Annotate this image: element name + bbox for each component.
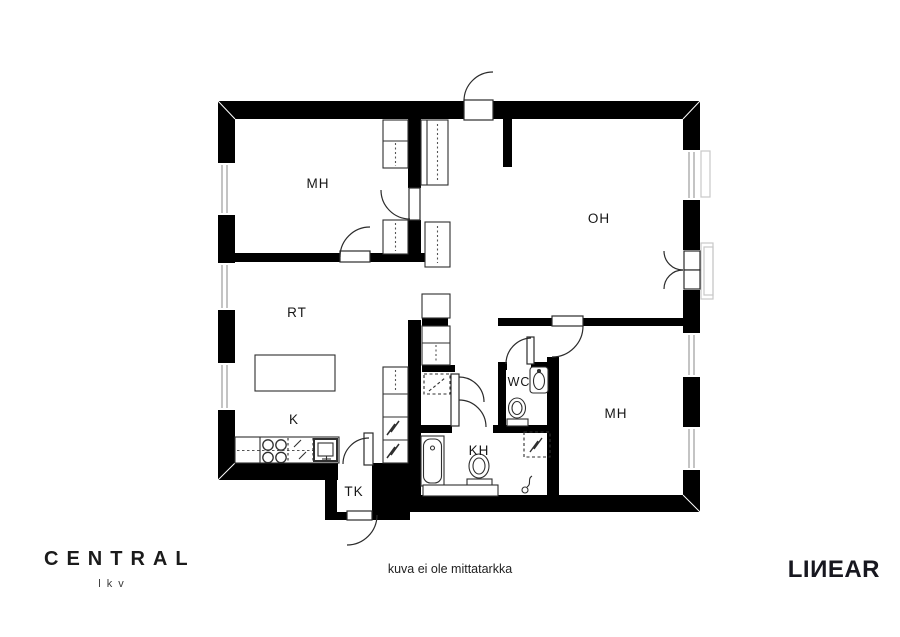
fridge-freezer-icon — [383, 367, 408, 463]
window-right-mh-1 — [689, 335, 694, 375]
room-label-tk: TK — [344, 484, 363, 499]
room-label-rt: RT — [287, 305, 307, 320]
sink-icon — [314, 439, 337, 461]
wc-sink-icon — [530, 367, 548, 393]
door-hall-kh — [451, 374, 486, 427]
door-tk-exterior — [347, 511, 377, 545]
front-door — [464, 72, 493, 120]
room-label-oh: OH — [588, 211, 610, 226]
room-label-k: K — [289, 412, 299, 427]
door-mh-top-south — [340, 227, 370, 262]
kitchen-counter — [235, 437, 339, 463]
wardrobe-icon — [421, 120, 448, 185]
window-left-3 — [222, 365, 227, 408]
door-wc — [506, 337, 534, 364]
wc-toilet-icon — [507, 398, 528, 426]
room-label-mh-bottom: MH — [605, 406, 628, 421]
bathtub-icon — [421, 436, 444, 486]
room-label-kh: KH — [469, 443, 490, 458]
window-right-mh-2 — [689, 429, 694, 468]
window-left-2 — [222, 265, 227, 308]
wardrobe-icon — [383, 220, 408, 254]
kh-washer-reservation-icon — [524, 432, 550, 457]
wardrobe-icon — [422, 294, 450, 318]
room-label-mh-top: MH — [307, 176, 330, 191]
door-tk-inner — [343, 433, 373, 465]
fixtures — [235, 120, 550, 496]
window-right-oh — [689, 152, 694, 198]
wardrobe-icon — [422, 326, 450, 365]
window-left-1 — [222, 165, 227, 213]
wardrobe-icon — [383, 120, 408, 168]
disclaimer-text: kuva ei ole mittatarkka — [0, 562, 900, 576]
provider-logo: LIИEAR — [788, 556, 880, 584]
room-label-wc: WC — [508, 375, 531, 389]
kh-toilet-icon — [467, 454, 492, 488]
floor-drain-icon — [522, 476, 532, 493]
floor-plan: MH OH RT K TK KH WC MH — [0, 0, 900, 637]
wardrobe-icon — [425, 222, 450, 267]
door-mh-top-east — [381, 188, 420, 220]
kh-bench — [423, 485, 498, 496]
balcony-rail — [701, 151, 713, 299]
washer-reservation-icon — [424, 374, 450, 394]
agency-subtitle: lkv — [44, 578, 184, 590]
table-icon — [255, 355, 335, 391]
door-balcony — [664, 251, 700, 289]
door-mh-bottom — [552, 316, 583, 357]
